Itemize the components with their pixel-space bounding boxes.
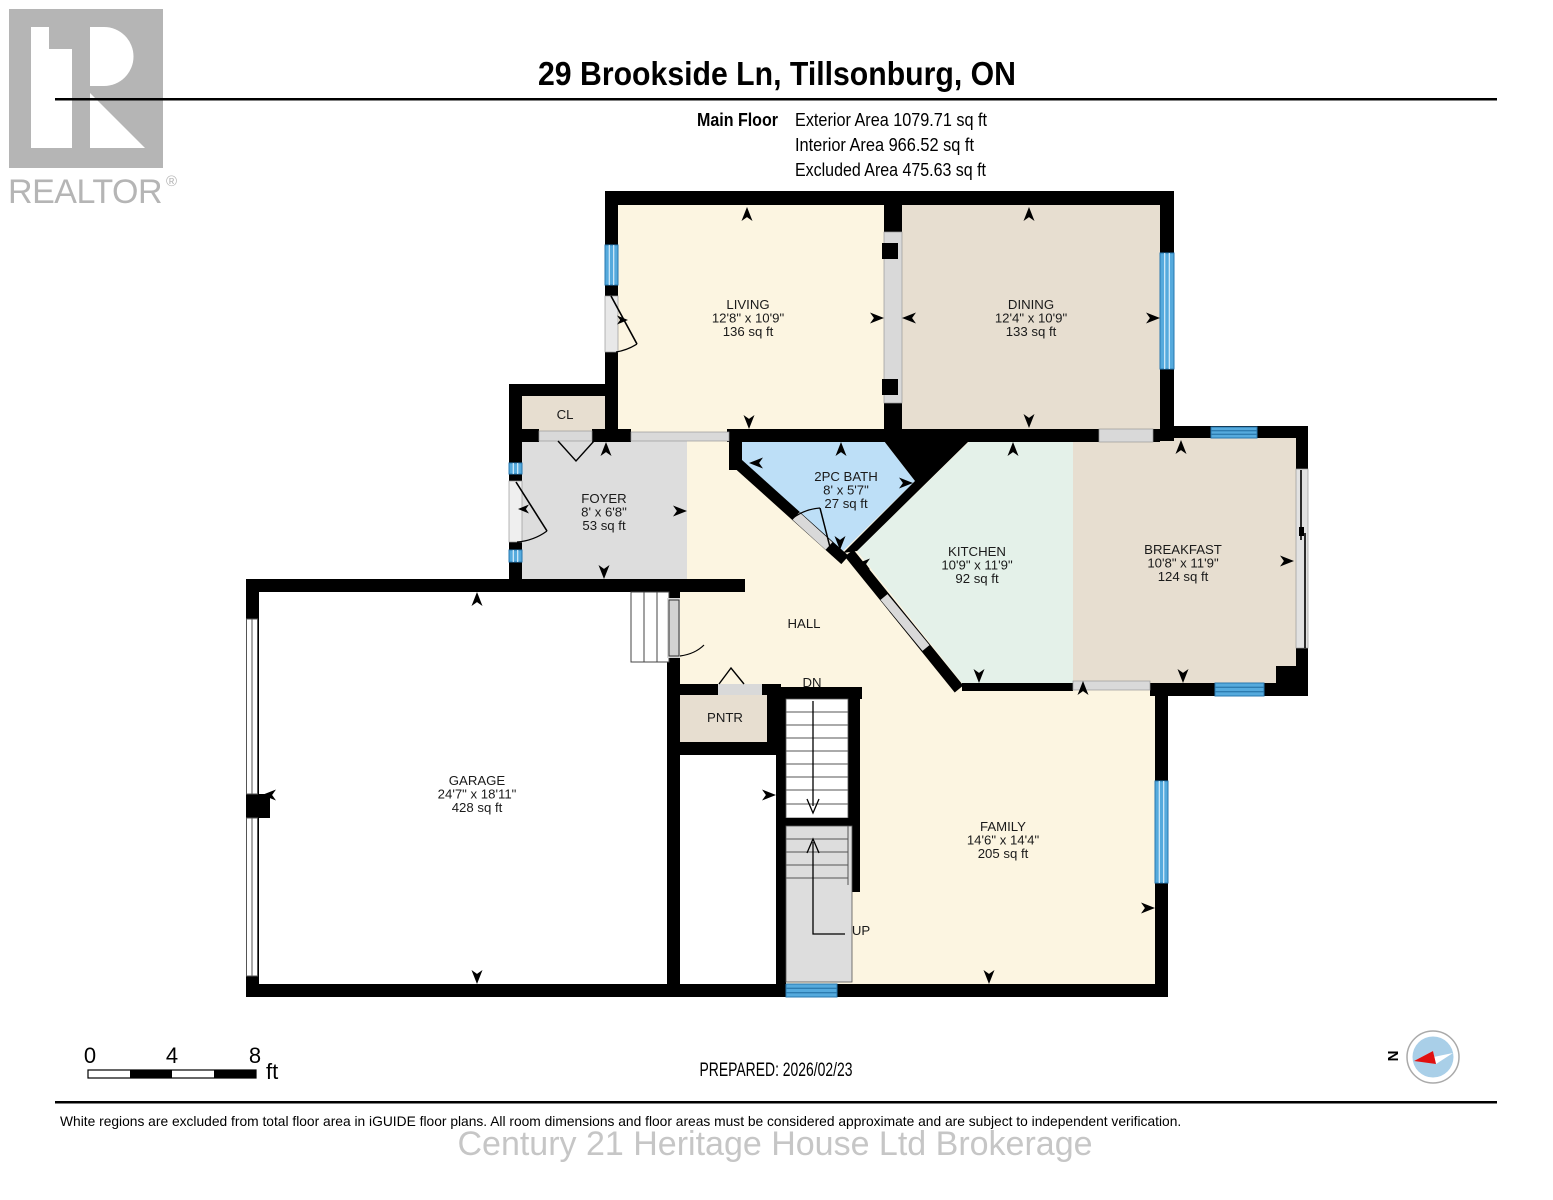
svg-text:124 sq ft: 124 sq ft [1158, 569, 1209, 584]
svg-text:PREPARED: 2026/02/23: PREPARED: 2026/02/23 [700, 1059, 853, 1081]
svg-text:HALL: HALL [788, 616, 821, 631]
svg-text:27 sq ft: 27 sq ft [824, 496, 868, 511]
svg-text:136 sq ft: 136 sq ft [723, 324, 774, 339]
svg-text:UP: UP [852, 923, 871, 938]
svg-text:133 sq ft: 133 sq ft [1006, 324, 1057, 339]
svg-text:0: 0 [84, 1043, 96, 1068]
svg-text:N: N [1385, 1051, 1402, 1062]
svg-text:53 sq ft: 53 sq ft [582, 518, 626, 533]
svg-text:205 sq ft: 205 sq ft [978, 846, 1029, 861]
svg-text:92 sq ft: 92 sq ft [955, 571, 999, 586]
svg-text:Century 21 Heritage House Ltd: Century 21 Heritage House Ltd Brokerage [457, 1125, 1092, 1163]
svg-text:PNTR: PNTR [707, 710, 743, 725]
svg-text:Interior Area 966.52 sq ft: Interior Area 966.52 sq ft [795, 135, 974, 155]
svg-text:428 sq ft: 428 sq ft [452, 800, 503, 815]
svg-text:DN: DN [802, 675, 821, 690]
svg-text:Excluded Area 475.63 sq ft: Excluded Area 475.63 sq ft [795, 160, 986, 180]
svg-text:CL: CL [557, 407, 574, 422]
svg-text:ft: ft [266, 1059, 278, 1084]
svg-text:Main Floor: Main Floor [697, 110, 778, 130]
svg-text:8: 8 [249, 1043, 261, 1068]
svg-text:Exterior Area 1079.71 sq ft: Exterior Area 1079.71 sq ft [795, 110, 987, 130]
svg-text:®: ® [166, 173, 177, 190]
svg-text:29 Brookside Ln, Tillsonburg,: 29 Brookside Ln, Tillsonburg, ON [538, 55, 1016, 92]
svg-text:REALTOR: REALTOR [8, 173, 163, 211]
svg-text:4: 4 [166, 1043, 178, 1068]
